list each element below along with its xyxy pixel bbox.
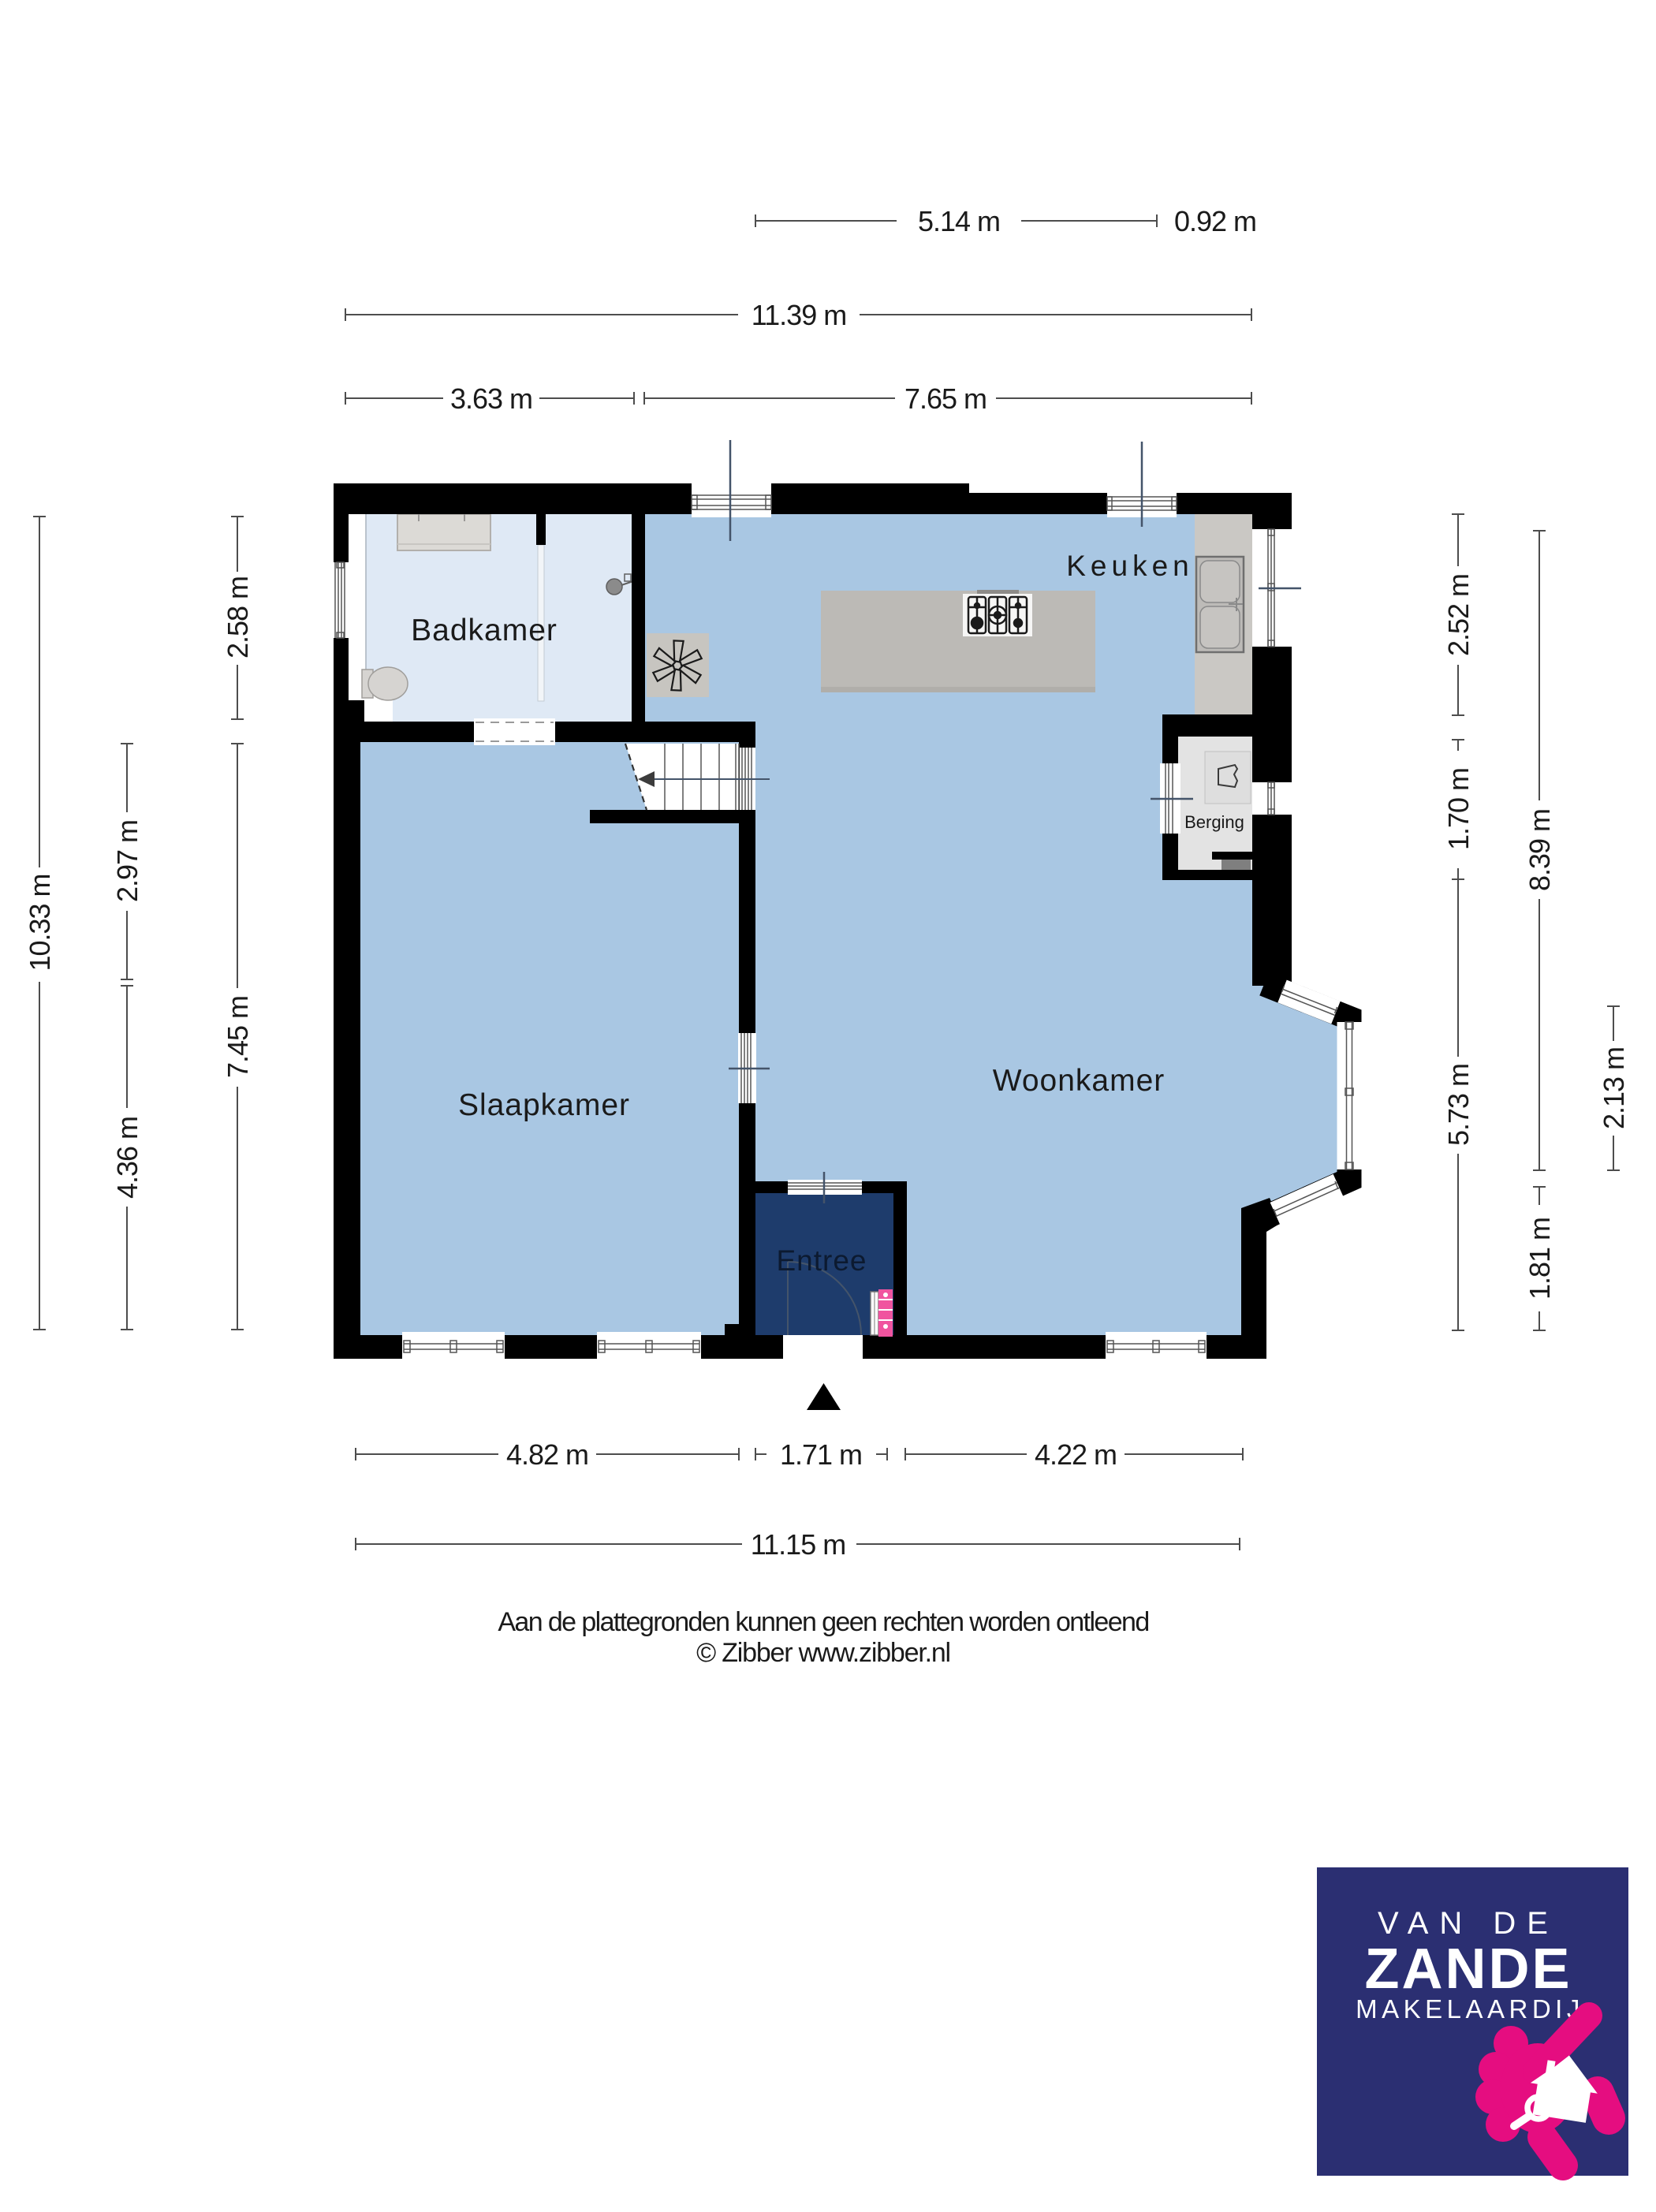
svg-text:7.65 m: 7.65 m bbox=[904, 382, 987, 415]
svg-text:3.63 m: 3.63 m bbox=[450, 382, 532, 415]
svg-text:Entree: Entree bbox=[776, 1244, 867, 1277]
svg-text:2.13 m: 2.13 m bbox=[1598, 1047, 1630, 1129]
svg-text:1.70 m: 1.70 m bbox=[1442, 768, 1475, 850]
svg-text:Slaapkamer: Slaapkamer bbox=[458, 1088, 630, 1122]
svg-text:1.71 m: 1.71 m bbox=[780, 1438, 862, 1471]
svg-text:8.39 m: 8.39 m bbox=[1524, 809, 1556, 891]
svg-text:1.81 m: 1.81 m bbox=[1524, 1218, 1556, 1300]
svg-text:7.45 m: 7.45 m bbox=[222, 996, 254, 1078]
svg-text:2.97 m: 2.97 m bbox=[111, 820, 144, 902]
svg-text:2.58 m: 2.58 m bbox=[222, 576, 254, 658]
svg-text:4.82 m: 4.82 m bbox=[506, 1438, 588, 1471]
svg-text:2.52 m: 2.52 m bbox=[1442, 574, 1475, 656]
svg-text:4.22 m: 4.22 m bbox=[1035, 1438, 1117, 1471]
svg-text:10.33 m: 10.33 m bbox=[24, 874, 56, 971]
svg-text:VAN DE: VAN DE bbox=[1378, 1906, 1559, 1941]
svg-text:11.39 m: 11.39 m bbox=[752, 299, 846, 331]
svg-text:Keuken: Keuken bbox=[1066, 550, 1194, 582]
svg-text:11.15 m: 11.15 m bbox=[751, 1528, 845, 1561]
svg-text:Berging: Berging bbox=[1184, 812, 1244, 832]
svg-text:5.14 m: 5.14 m bbox=[918, 205, 1000, 237]
svg-text:Aan de plattegronden kunnen ge: Aan de plattegronden kunnen geen rechten… bbox=[498, 1607, 1148, 1637]
svg-text:Woonkamer: Woonkamer bbox=[993, 1064, 1166, 1098]
svg-text:© Zibber www.zibber.nl: © Zibber www.zibber.nl bbox=[696, 1638, 950, 1668]
svg-text:MAKELAARDIJ: MAKELAARDIJ bbox=[1356, 1994, 1584, 2024]
svg-text:Badkamer: Badkamer bbox=[411, 614, 558, 647]
svg-text:ZANDE: ZANDE bbox=[1365, 1938, 1572, 2001]
svg-text:4.36 m: 4.36 m bbox=[111, 1117, 144, 1199]
svg-text:0.92 m: 0.92 m bbox=[1174, 205, 1256, 237]
svg-text:5.73 m: 5.73 m bbox=[1442, 1064, 1475, 1146]
